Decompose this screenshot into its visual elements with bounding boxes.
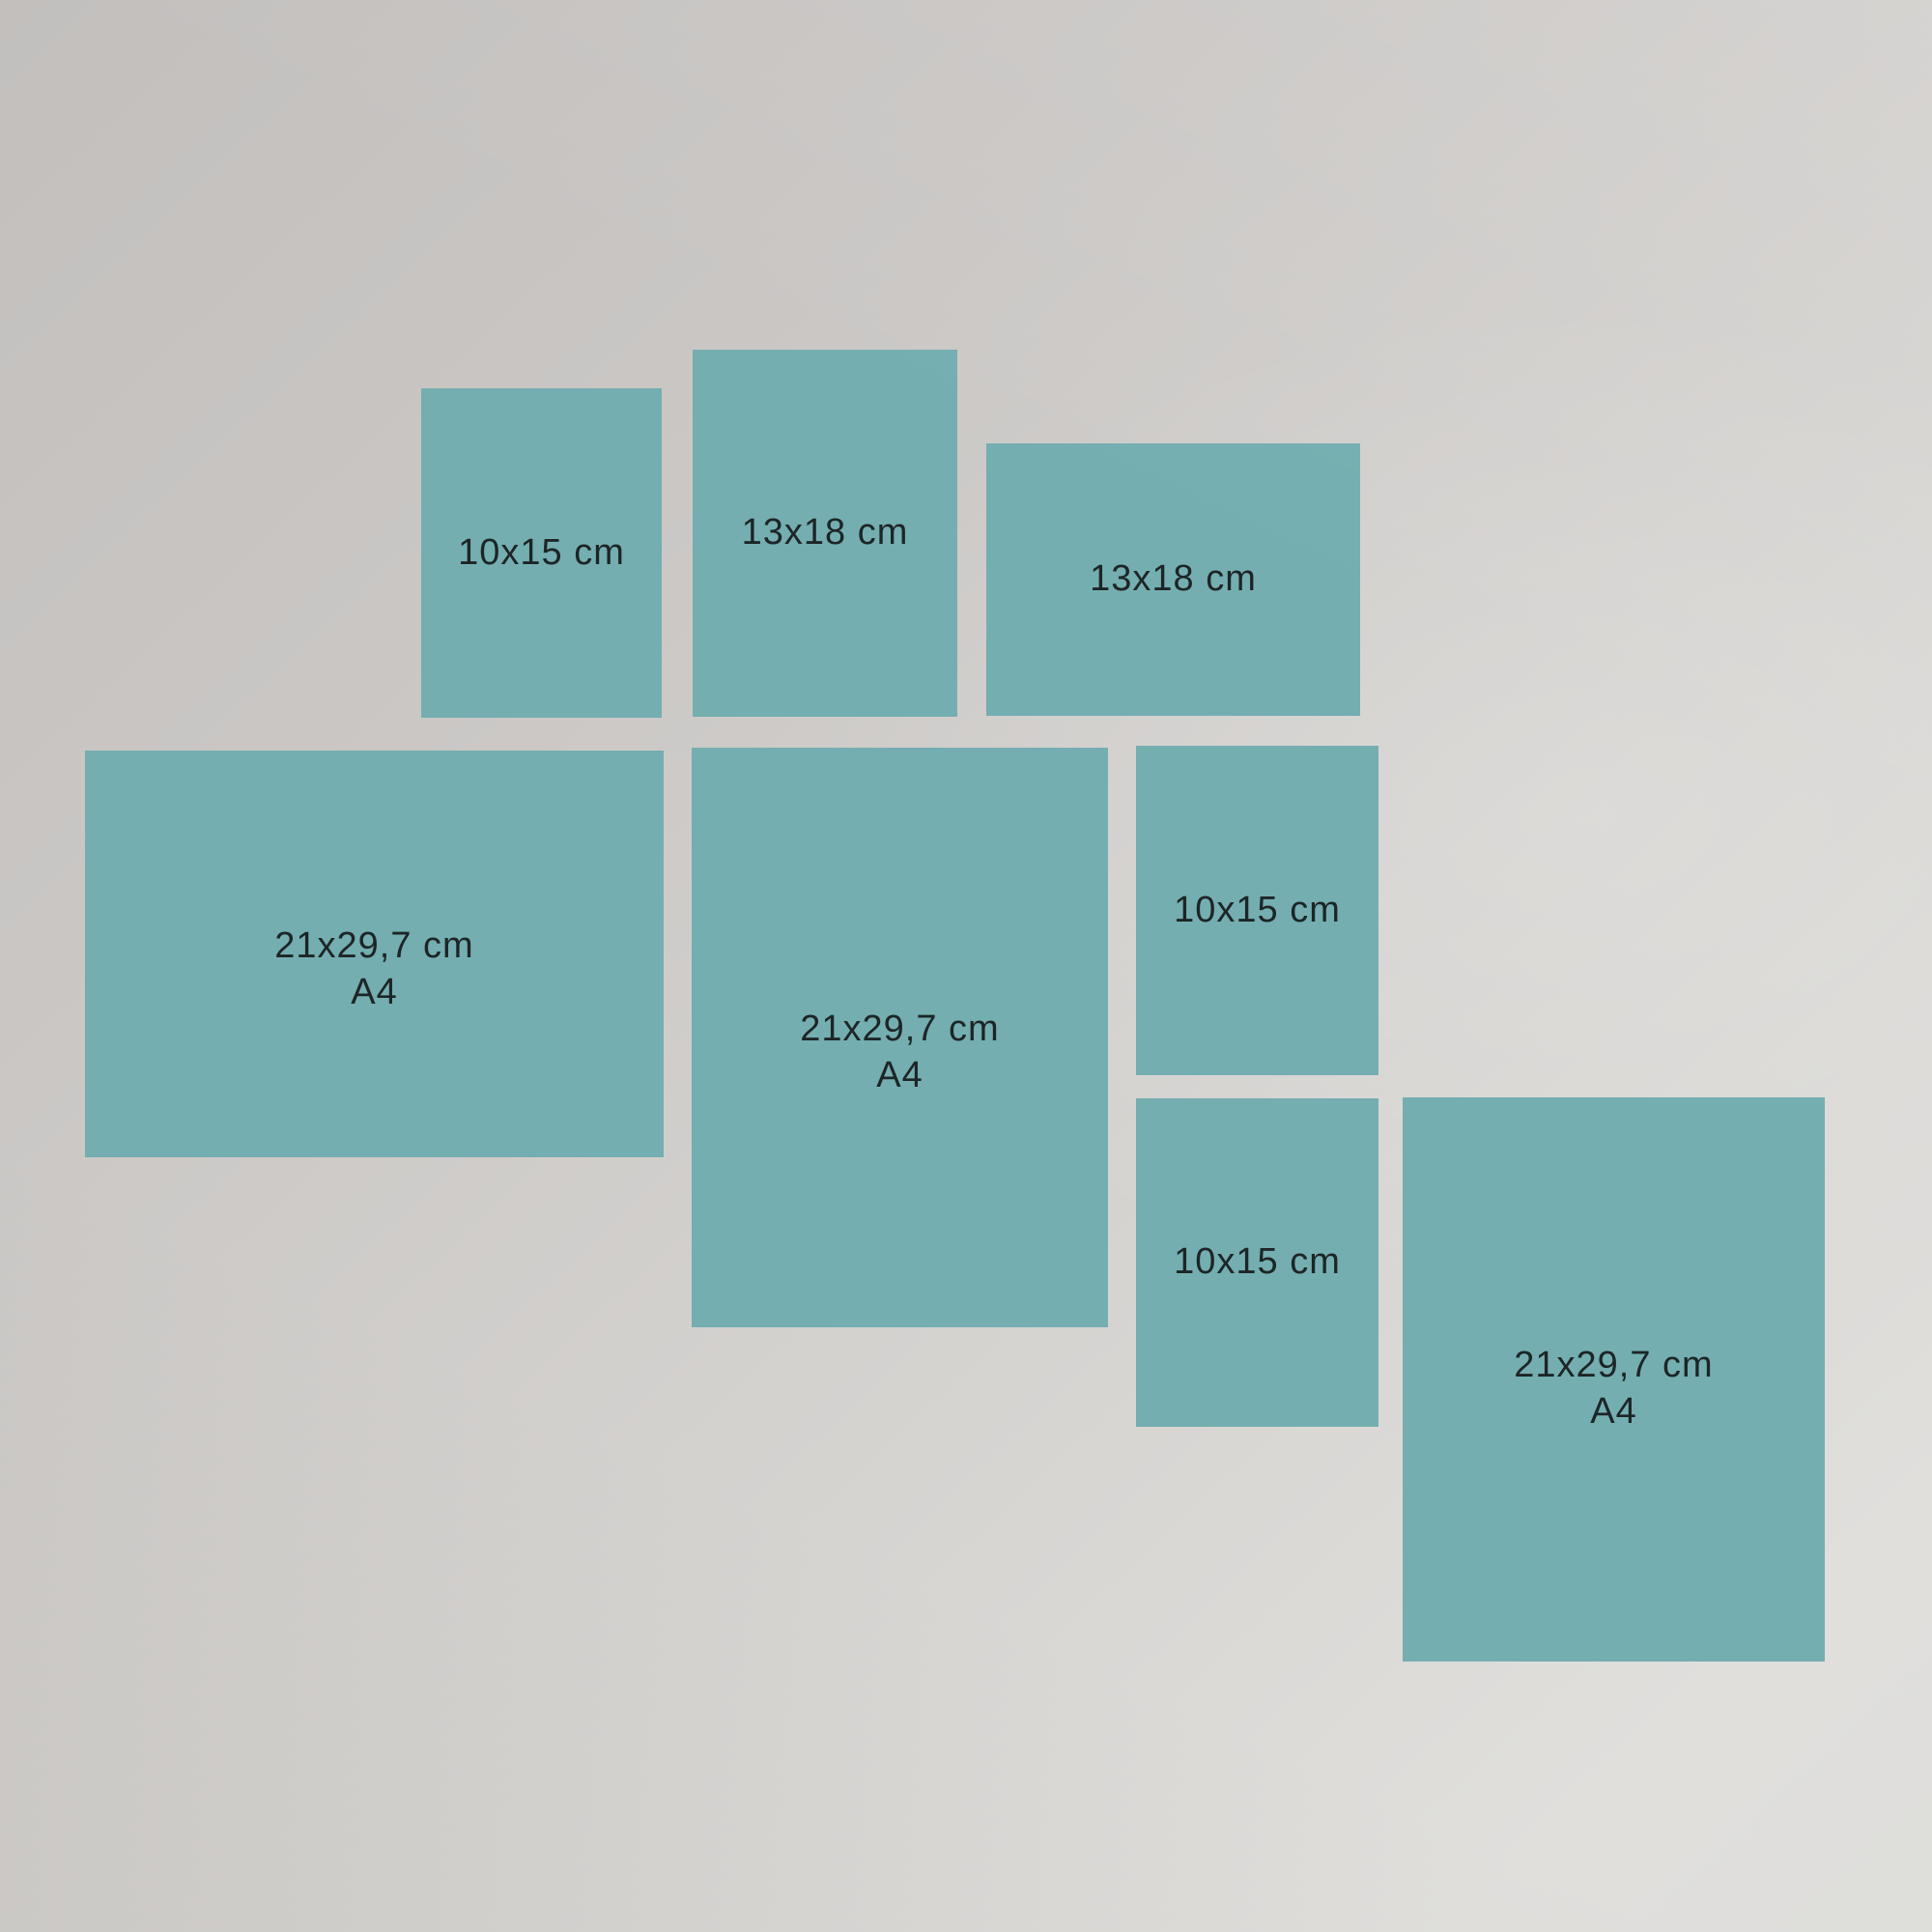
- size-label: 13x18 cm: [742, 510, 909, 556]
- size-swatch-a4-portrait-center: 21x29,7 cm A4: [692, 748, 1108, 1327]
- size-label-text: 10x15 cm: [1174, 1239, 1341, 1286]
- size-label-text: 21x29,7 cm: [1514, 1343, 1713, 1389]
- size-label: 10x15 cm: [458, 530, 625, 577]
- size-label-text: 10x15 cm: [458, 530, 625, 577]
- size-swatch-10x15-middle: 10x15 cm: [1136, 746, 1378, 1075]
- format-label-text: A4: [274, 970, 473, 1016]
- size-label: 21x29,7 cm A4: [1514, 1343, 1713, 1435]
- size-label: 13x18 cm: [1090, 556, 1257, 603]
- size-swatch-13x18-portrait: 13x18 cm: [693, 350, 957, 717]
- size-label: 21x29,7 cm A4: [800, 1007, 999, 1099]
- size-label: 10x15 cm: [1174, 888, 1341, 934]
- size-label-text: 13x18 cm: [742, 510, 909, 556]
- size-label-text: 21x29,7 cm: [274, 923, 473, 970]
- size-label-text: 21x29,7 cm: [800, 1007, 999, 1053]
- size-swatch-a4-portrait-right: 21x29,7 cm A4: [1403, 1097, 1825, 1662]
- size-label-text: 13x18 cm: [1090, 556, 1257, 603]
- size-label-text: 10x15 cm: [1174, 888, 1341, 934]
- size-swatch-10x15-bottom: 10x15 cm: [1136, 1098, 1378, 1427]
- format-label-text: A4: [800, 1053, 999, 1099]
- size-swatch-10x15-top: 10x15 cm: [421, 388, 662, 718]
- size-label: 10x15 cm: [1174, 1239, 1341, 1286]
- format-label-text: A4: [1514, 1389, 1713, 1435]
- size-swatch-a4-landscape: 21x29,7 cm A4: [85, 751, 664, 1157]
- size-swatch-13x18-landscape: 13x18 cm: [986, 443, 1360, 716]
- size-label: 21x29,7 cm A4: [274, 923, 473, 1016]
- backdrop: 10x15 cm 13x18 cm 13x18 cm 21x29,7 cm A4…: [0, 0, 1932, 1932]
